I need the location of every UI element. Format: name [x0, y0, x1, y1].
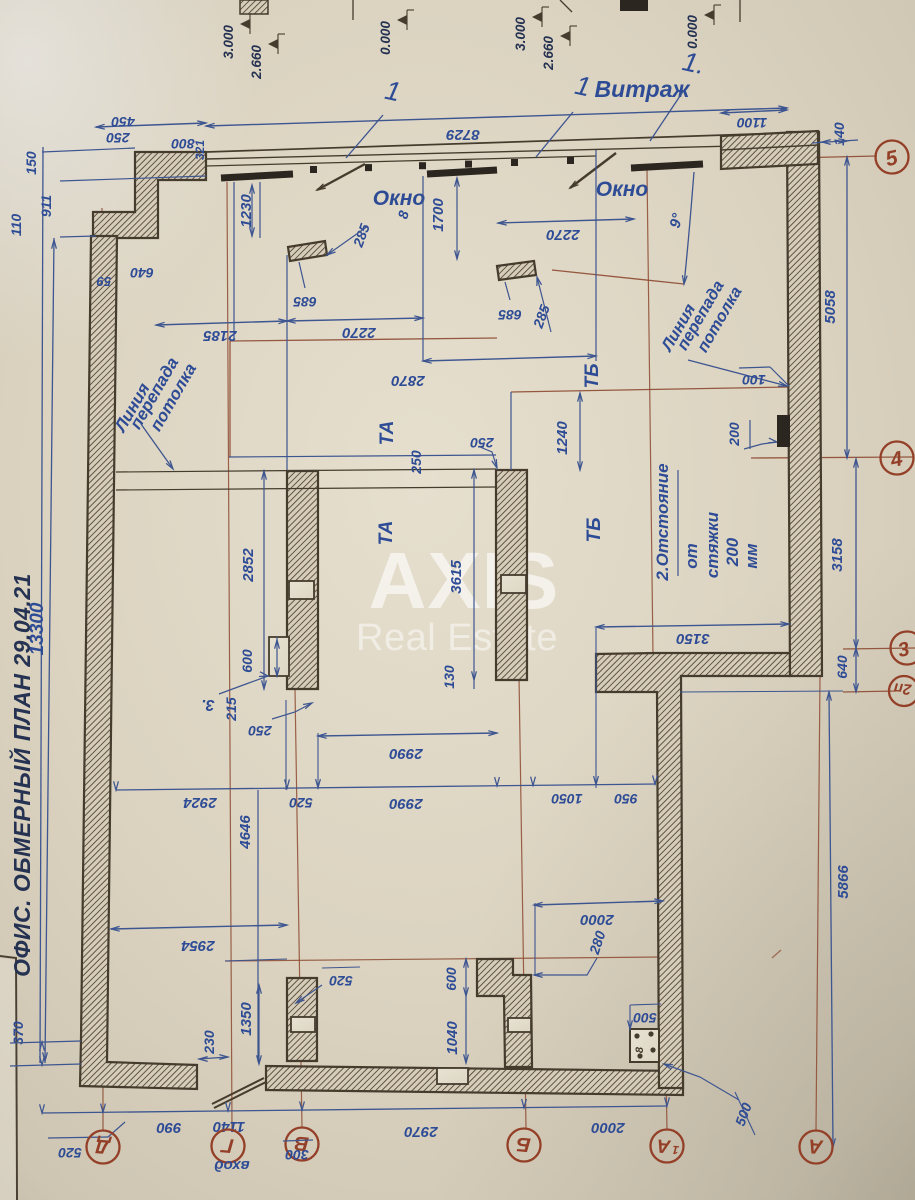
svg-text:мм: мм — [742, 543, 761, 569]
svg-text:Д: Д — [94, 1134, 112, 1157]
svg-text:1350: 1350 — [238, 1002, 255, 1036]
svg-text:990: 990 — [156, 1119, 182, 1136]
svg-text:200: 200 — [723, 537, 742, 567]
svg-text:520: 520 — [329, 973, 353, 989]
svg-text:600: 600 — [443, 967, 459, 991]
svg-text:110: 110 — [8, 214, 24, 237]
svg-text:230: 230 — [201, 1030, 217, 1055]
svg-text:ТА: ТА — [376, 521, 397, 546]
svg-text:685: 685 — [498, 307, 522, 323]
svg-text:Окно: Окно — [373, 187, 426, 210]
svg-text:0.000: 0.000 — [685, 15, 700, 49]
svg-text:2270: 2270 — [546, 226, 581, 243]
svg-text:2п: 2п — [893, 679, 913, 698]
svg-text:ОФИС. ОБМЕРНЫЙ ПЛАН 29.04.2: ОФИС. ОБМЕРНЫЙ ПЛАН 29.04.21 — [7, 573, 35, 977]
svg-text:100: 100 — [742, 372, 766, 388]
svg-text:2924: 2924 — [183, 794, 218, 811]
svg-text:1230: 1230 — [238, 194, 255, 228]
svg-text:5058: 5058 — [822, 290, 839, 324]
svg-text:250: 250 — [248, 723, 273, 739]
svg-text:от: от — [682, 543, 701, 569]
svg-text:0.000: 0.000 — [378, 21, 393, 55]
svg-text:1100: 1100 — [737, 115, 767, 131]
svg-text:200: 200 — [726, 422, 742, 447]
svg-text:215: 215 — [223, 697, 239, 722]
svg-text:А: А — [807, 1134, 824, 1157]
svg-text:2185: 2185 — [203, 327, 238, 344]
svg-text:600: 600 — [239, 649, 255, 673]
svg-text:640: 640 — [130, 265, 154, 281]
svg-text:Витраж: Витраж — [595, 76, 691, 102]
svg-text:3150: 3150 — [676, 630, 710, 647]
svg-text:2.Отстояние: 2.Отстояние — [653, 463, 672, 581]
svg-text:3.000: 3.000 — [221, 25, 236, 59]
svg-text:300: 300 — [285, 1147, 309, 1163]
svg-text:2970: 2970 — [404, 1123, 439, 1140]
svg-text:640: 640 — [834, 655, 850, 679]
svg-text:5866: 5866 — [835, 865, 852, 899]
svg-text:2954: 2954 — [181, 937, 216, 954]
svg-text:150: 150 — [23, 151, 39, 175]
svg-text:4646: 4646 — [237, 815, 254, 850]
svg-text:ТА: ТА — [377, 421, 398, 446]
svg-text:3158: 3158 — [829, 538, 846, 572]
svg-text:3.: 3. — [201, 696, 214, 713]
svg-text:Б: Б — [515, 1132, 531, 1155]
svg-text:ТБ: ТБ — [582, 363, 603, 388]
svg-text:1040: 1040 — [444, 1021, 461, 1055]
svg-text:685: 685 — [293, 294, 317, 310]
svg-text:3615: 3615 — [448, 560, 465, 594]
svg-text:950: 950 — [614, 791, 638, 807]
svg-text:321: 321 — [193, 140, 207, 160]
svg-text:2870: 2870 — [391, 372, 426, 389]
svg-text:Окно: Окно — [596, 178, 649, 201]
svg-text:911: 911 — [38, 195, 54, 218]
svg-text:250: 250 — [408, 450, 424, 475]
svg-text:520: 520 — [58, 1145, 82, 1161]
svg-text:1050: 1050 — [551, 791, 582, 807]
svg-text:2270: 2270 — [342, 324, 377, 341]
svg-text:2990: 2990 — [389, 795, 424, 812]
svg-text:3.000: 3.000 — [513, 17, 528, 51]
svg-text:ТБ: ТБ — [584, 517, 605, 542]
svg-text:250: 250 — [106, 130, 131, 146]
svg-text:стяжки: стяжки — [703, 511, 722, 578]
svg-text:8: 8 — [634, 1046, 646, 1053]
svg-text:59: 59 — [96, 274, 111, 289]
svg-text:2.660: 2.660 — [541, 36, 556, 71]
svg-text:2852: 2852 — [240, 548, 257, 583]
svg-text:370: 370 — [10, 1021, 26, 1045]
svg-text:800: 800 — [171, 136, 195, 152]
svg-text:2990: 2990 — [389, 745, 424, 762]
svg-text:130: 130 — [441, 665, 457, 689]
svg-text:2000: 2000 — [591, 1119, 626, 1136]
svg-text:500: 500 — [633, 1010, 657, 1026]
svg-text:2000: 2000 — [580, 911, 615, 928]
svg-text:520: 520 — [289, 795, 313, 811]
svg-text:1240: 1240 — [554, 421, 571, 455]
svg-text:А: А — [656, 1134, 673, 1156]
svg-text:2.660: 2.660 — [249, 45, 264, 80]
svg-text:8729: 8729 — [446, 126, 480, 143]
svg-text:450: 450 — [111, 114, 136, 130]
svg-text:вход: вход — [214, 1157, 249, 1174]
svg-text:1700: 1700 — [430, 198, 447, 232]
